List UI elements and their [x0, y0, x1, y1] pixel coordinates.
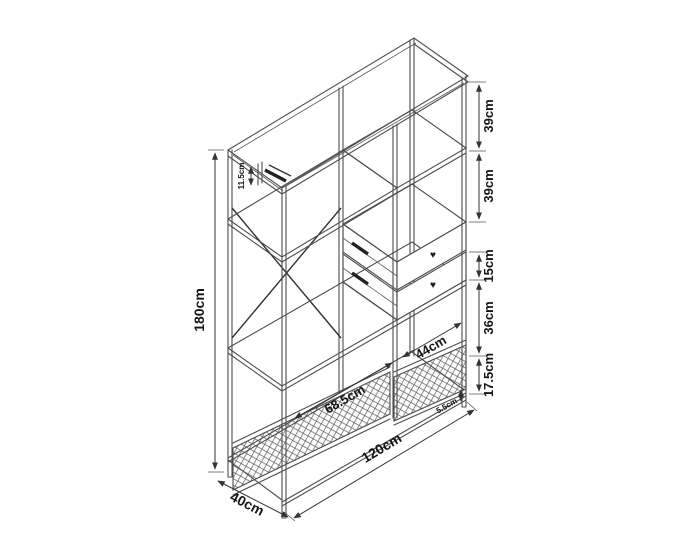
segment-label-15: 15cm [481, 249, 496, 282]
left-mesh-basket [233, 367, 390, 495]
diagram-canvas: ♥ ♥ 180cm [0, 0, 700, 550]
right-shelf-1 [343, 110, 466, 193]
top-panel [228, 38, 468, 194]
height-label: 180cm [191, 288, 207, 332]
segment-label-39-mid: 39cm [481, 169, 496, 202]
post-back-divider [339, 86, 343, 392]
left-top-shelf [228, 150, 397, 262]
segment-label-36: 36cm [481, 301, 496, 334]
dimension-height: 180cm [191, 150, 224, 472]
dimension-depth: 40cm [218, 481, 288, 519]
segment-label-17-5: 17.5cm [481, 353, 496, 397]
drawer-2-side [343, 254, 397, 320]
heart-knob-icon: ♥ [430, 250, 436, 261]
width-label: 120cm [359, 430, 405, 466]
wardrobe-line-drawing: ♥ ♥ 180cm [0, 0, 700, 550]
segment-label-39-top: 39cm [481, 99, 496, 132]
hook-drop-label: 11.5cm [237, 163, 246, 190]
post-back-left [228, 150, 232, 477]
heart-knob-icon: ♥ [430, 280, 436, 291]
hanging-rail-hook [258, 162, 291, 185]
post-front-divider [393, 124, 397, 418]
dimension-right-chain: 39cm 39cm 15cm 36cm 17.5cm [469, 82, 496, 397]
post-front-left [282, 186, 286, 518]
depth-label: 40cm [228, 488, 267, 519]
drawer-1-side [343, 224, 397, 290]
top-panel-face [228, 38, 468, 188]
